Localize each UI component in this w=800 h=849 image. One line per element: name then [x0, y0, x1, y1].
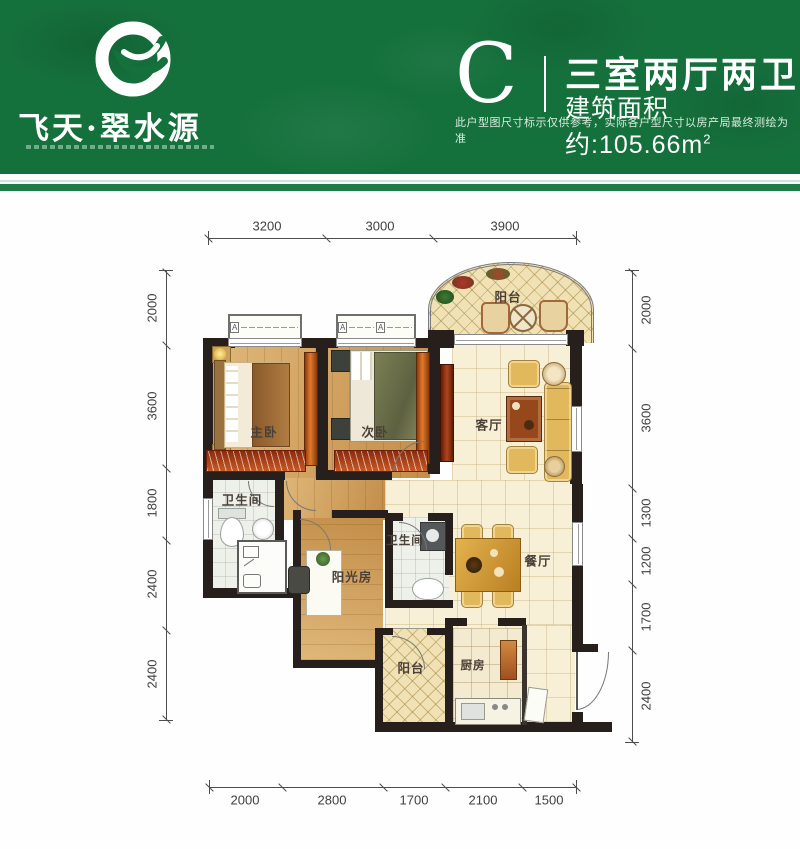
- table-decor: [512, 402, 520, 410]
- header-band: 飞天·翠水源 C 三室两厅两卫 建筑面积约:105.66m2 此户型图尺寸标示仅…: [0, 0, 800, 174]
- second-bed-pillows: [352, 352, 372, 380]
- entry-door-arc: [576, 652, 609, 710]
- balcony-plant-icon: [436, 290, 454, 304]
- toilet: [412, 578, 444, 600]
- balcony-flowers-icon: [486, 268, 510, 280]
- dim-line-top: [208, 238, 577, 239]
- dim-right-5: 1700: [639, 603, 654, 632]
- dim-top-2: 3000: [366, 219, 395, 234]
- balcony-round-table: [508, 303, 538, 333]
- dim-right-6: 2400: [639, 682, 654, 711]
- dim-top-1: 3200: [253, 219, 282, 234]
- room-label-bathroom-1: 卫生间: [222, 490, 263, 509]
- balcony-chair: [539, 300, 568, 332]
- dining-window: [572, 522, 583, 566]
- master-closet: [206, 450, 306, 472]
- room-label-master-bedroom: 主卧: [250, 422, 277, 441]
- floorplan-flyer: 飞天·翠水源 C 三室两厅两卫 建筑面积约:105.66m2 此户型图尺寸标示仅…: [0, 0, 800, 849]
- room-label-balcony-top: 阳台: [494, 287, 521, 306]
- dim-bottom-1: 2000: [231, 793, 260, 808]
- lamp-icon: [214, 348, 226, 360]
- table-decor: [524, 420, 534, 430]
- dim-bottom-4: 2100: [469, 793, 498, 808]
- master-window-sill: [228, 338, 302, 347]
- room-label-sunroom: 阳光房: [332, 567, 373, 586]
- dim-bottom-5: 1500: [535, 793, 564, 808]
- master-wardrobe: [304, 352, 318, 466]
- brand-subtext-line: [26, 145, 214, 149]
- header-divider: [544, 56, 546, 112]
- tv-cabinet: [440, 364, 454, 462]
- speaker-box: [331, 350, 351, 372]
- bathroom1-window: [203, 498, 213, 540]
- dim-left-5: 2400: [145, 660, 160, 689]
- dim-left-4: 2400: [145, 570, 160, 599]
- dim-right-1: 2000: [639, 296, 654, 325]
- entry-door-leaf: [576, 652, 578, 710]
- dim-right-3: 1300: [639, 499, 654, 528]
- kitchen-stove-panel: [500, 640, 517, 680]
- header-mint-line: [0, 180, 800, 182]
- room-label-bathroom-2: 卫生间: [386, 532, 424, 548]
- side-table: [544, 456, 565, 477]
- master-bed-pillows: [226, 366, 238, 442]
- dim-bottom-2: 2800: [318, 793, 347, 808]
- dim-line-right: [632, 270, 633, 742]
- dim-bottom-3: 1700: [400, 793, 429, 808]
- brand-logo-icon: [84, 18, 182, 102]
- laundry-closet: [237, 540, 287, 594]
- room-label-second-bedroom: 次卧: [361, 422, 388, 441]
- brand-name: 飞天·翠水源: [18, 103, 278, 148]
- unit-letter: C: [455, 34, 518, 116]
- bay-window-master: A: [228, 314, 302, 340]
- desk-plant-icon: [316, 552, 330, 566]
- sink: [252, 518, 274, 540]
- room-label-kitchen: 厨房: [461, 657, 486, 673]
- dim-left-1: 2000: [145, 294, 160, 323]
- bay-window-second: AA: [336, 314, 416, 340]
- balcony-chair: [481, 302, 510, 334]
- room-label-balcony-bottom: 阳台: [397, 658, 424, 677]
- balcony-flowers-icon: [452, 276, 474, 289]
- dining-table: [455, 538, 521, 592]
- disclaimer-text: 此户型图尺寸标示仅供参考，实际各户型尺寸以房产局最终测绘为准: [455, 114, 795, 146]
- kitchen-counter: [455, 698, 521, 725]
- sunroom-chair: [288, 566, 310, 594]
- dim-left-2: 3600: [145, 392, 160, 421]
- dim-right-2: 3600: [639, 404, 654, 433]
- armchair: [506, 446, 538, 474]
- room-label-living-room: 客厅: [475, 415, 502, 434]
- side-table: [542, 362, 566, 386]
- armchair: [508, 360, 540, 388]
- dim-top-3: 3900: [491, 219, 520, 234]
- speaker-box: [331, 418, 351, 440]
- room-label-dining-room: 餐厅: [524, 551, 551, 570]
- dim-right-4: 1200: [639, 547, 654, 576]
- second-window-sill: [336, 338, 416, 347]
- dim-left-3: 1800: [145, 489, 160, 518]
- balcony-living-window: [454, 334, 568, 345]
- coffee-table-rug: [506, 396, 542, 442]
- header-green-stripe: [0, 184, 800, 191]
- dim-line-left: [166, 270, 167, 720]
